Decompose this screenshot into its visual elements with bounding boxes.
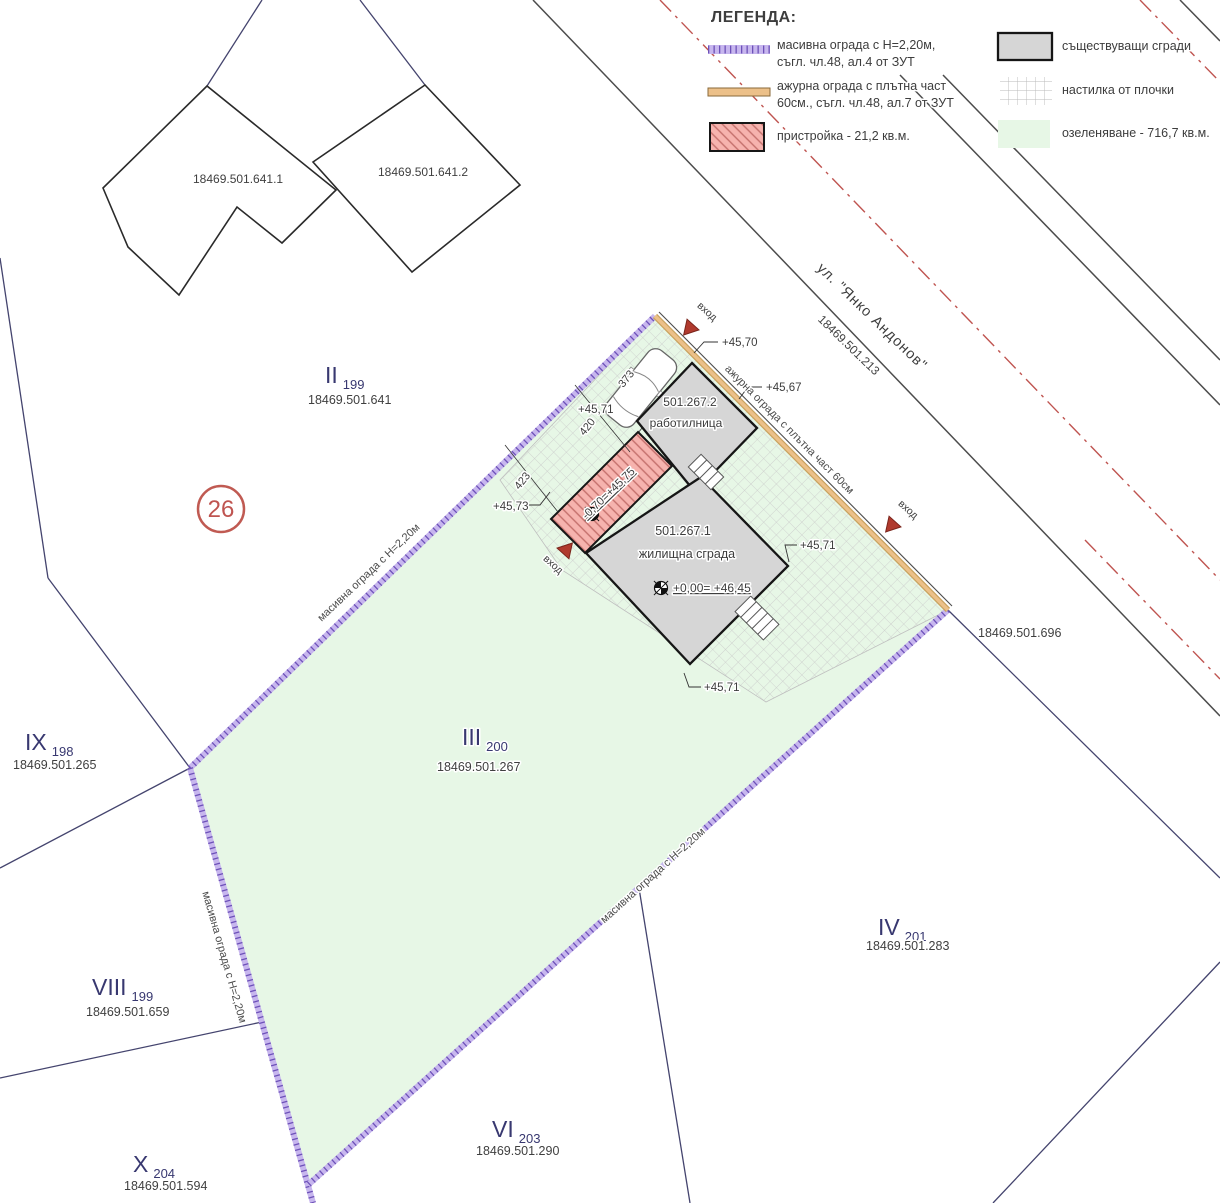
house-id: 501.267.1 (655, 524, 711, 538)
legend-swatch-openwork-fence (708, 88, 770, 96)
plot-number: 26 (208, 496, 235, 523)
level-45-70: +45,70 (722, 337, 758, 349)
parcel-ii-roman: II (325, 362, 338, 388)
legend-swatch-annex (710, 123, 764, 151)
legend-item-paving: настилка от плочки (1062, 83, 1174, 97)
parcel-iii-num: 200 (486, 739, 508, 754)
parcel-viii-id: 18469.501.659 (86, 1005, 169, 1019)
parcel-x-id: 18469.501.594 (124, 1179, 207, 1193)
level-45-67: +45,67 (766, 382, 802, 394)
parcel-ix-roman: IX (25, 729, 47, 755)
parcel-x-roman: X (133, 1151, 148, 1177)
parcel-ix-num: 198 (52, 744, 74, 759)
neighbor-building-641-1-label: 18469.501.641.1 (193, 172, 283, 186)
legend-item-existing: съществуващи сгради (1062, 39, 1191, 53)
parcel-viii-roman: VIII (92, 974, 127, 1000)
site-plan-canvas: 26 II199 18469.501.641 III200 18469.501.… (0, 0, 1220, 1203)
parcel-ix-id: 18469.501.265 (13, 758, 96, 772)
level-45-71-left: +45,71 (578, 404, 614, 416)
workshop-id: 501.267.2 (663, 395, 717, 409)
legend-swatch-existing (998, 33, 1052, 60)
parcel-iv-id: 18469.501.283 (866, 939, 949, 953)
legend-item-solid-fence-2: съгл. чл.48, ал.4 от ЗУТ (777, 55, 915, 69)
parcel-ii-num: 199 (343, 377, 365, 392)
legend-item-solid-fence-1: масивна ограда с Н=2,20м, (777, 38, 935, 52)
legend-swatch-greening (998, 120, 1050, 148)
parcel-iv-roman: IV (878, 914, 900, 940)
legend-title: ЛЕГЕНДА: (711, 9, 796, 26)
level-45-73: +45,73 (493, 501, 529, 513)
legend-item-openwork-fence-2: 60см., съгл. чл.48, ал.7 от ЗУТ (777, 96, 954, 110)
legend-swatch-paving (1000, 77, 1052, 105)
legend-swatch-solid-fence (708, 45, 770, 54)
neighbor-parcel-id: 18469.501.696 (978, 626, 1061, 640)
house-name: жилищна сграда (639, 547, 735, 561)
parcel-vi-id: 18469.501.290 (476, 1144, 559, 1158)
site-plan: 26 II199 18469.501.641 III200 18469.501.… (0, 0, 1220, 1203)
legend-item-annex: пристройка - 21,2 кв.м. (777, 129, 910, 143)
workshop-name: работилница (650, 416, 723, 430)
level-main-floor: +0,00= +46,45 (673, 581, 751, 595)
parcel-viii-num: 199 (132, 989, 154, 1004)
level-45-71-right: +45,71 (800, 540, 836, 552)
parcel-vi-roman: VI (492, 1116, 514, 1142)
legend-item-greening: озеленяване - 716,7 кв.м. (1062, 126, 1210, 140)
level-45-71-bottom: +45,71 (704, 682, 740, 694)
parcel-iii-id: 18469.501.267 (437, 760, 520, 774)
parcel-ii-id: 18469.501.641 (308, 393, 391, 407)
parcel-iii-roman: III (462, 724, 481, 750)
legend-item-openwork-fence-1: ажурна ограда с плътна част (777, 79, 946, 93)
neighbor-building-641-2-label: 18469.501.641.2 (378, 165, 468, 179)
